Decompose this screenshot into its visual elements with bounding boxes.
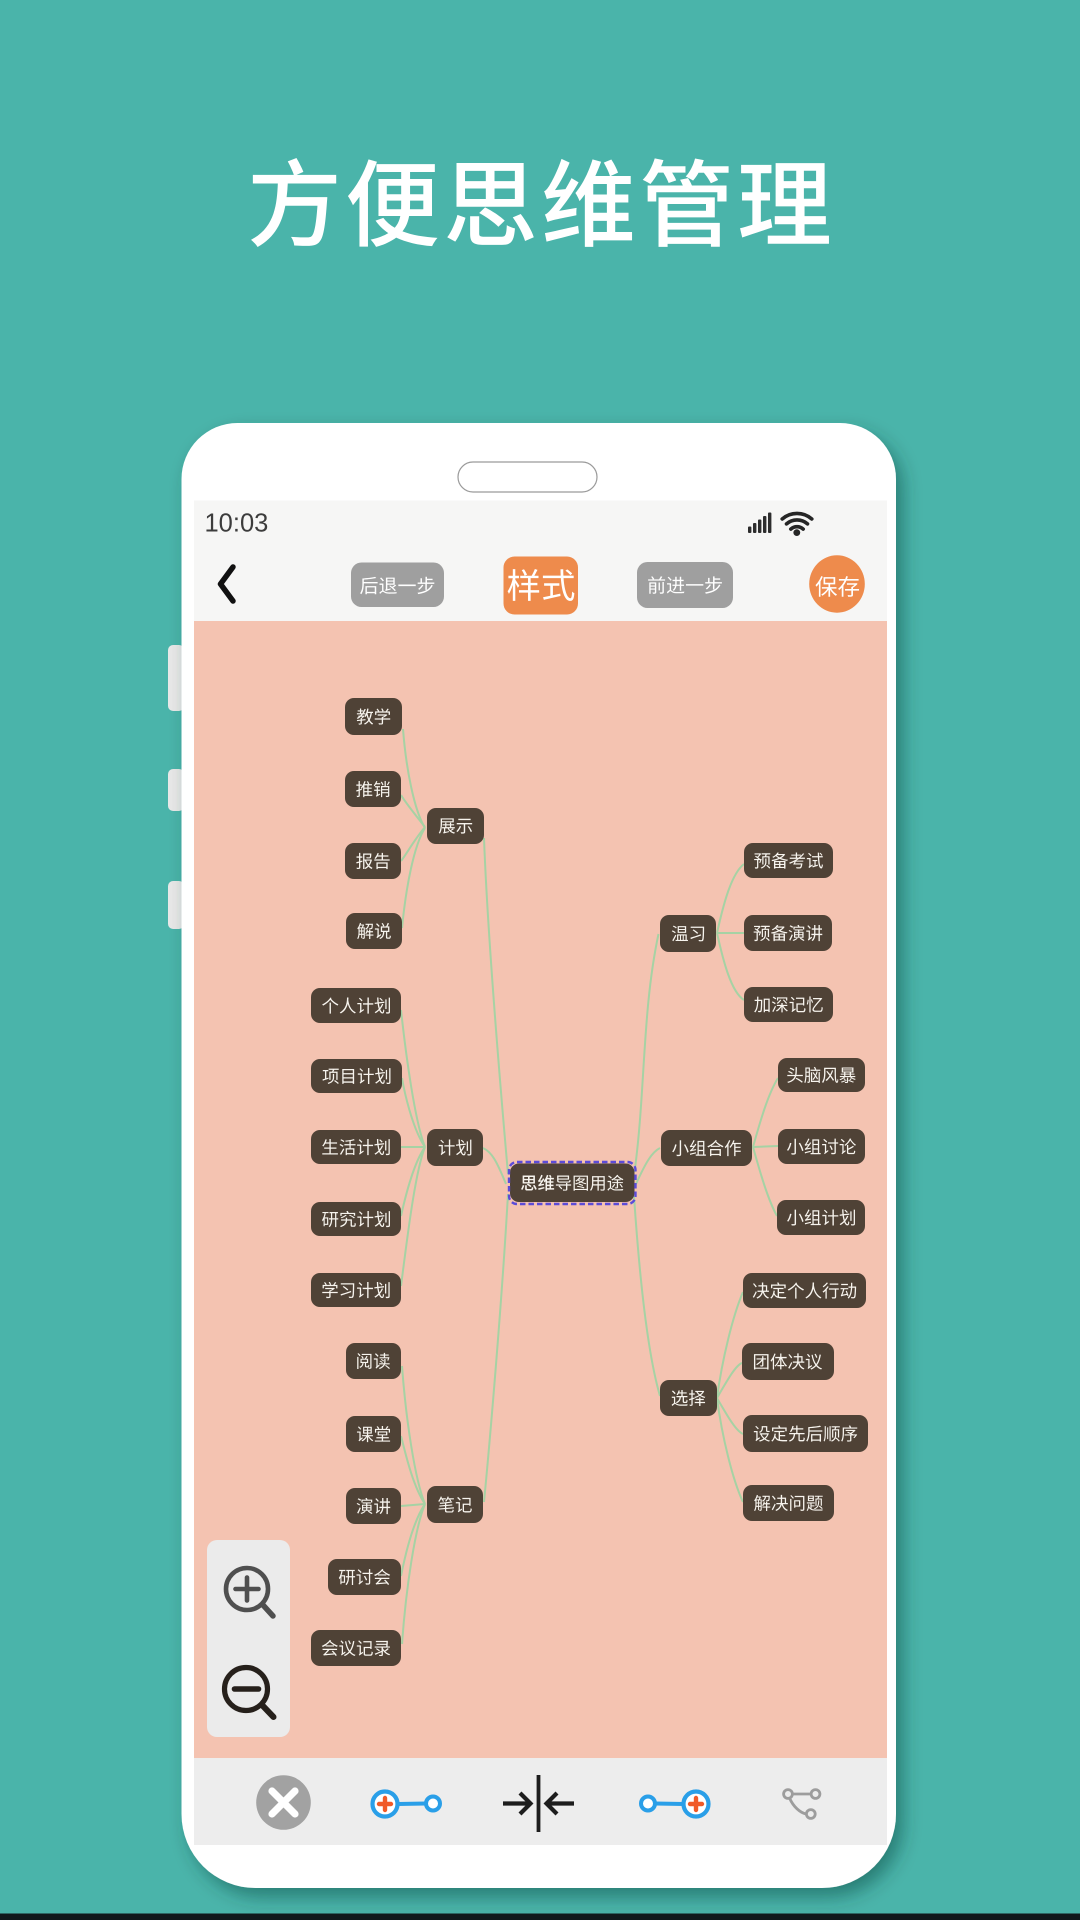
svg-text:10:03: 10:03 (205, 510, 269, 538)
